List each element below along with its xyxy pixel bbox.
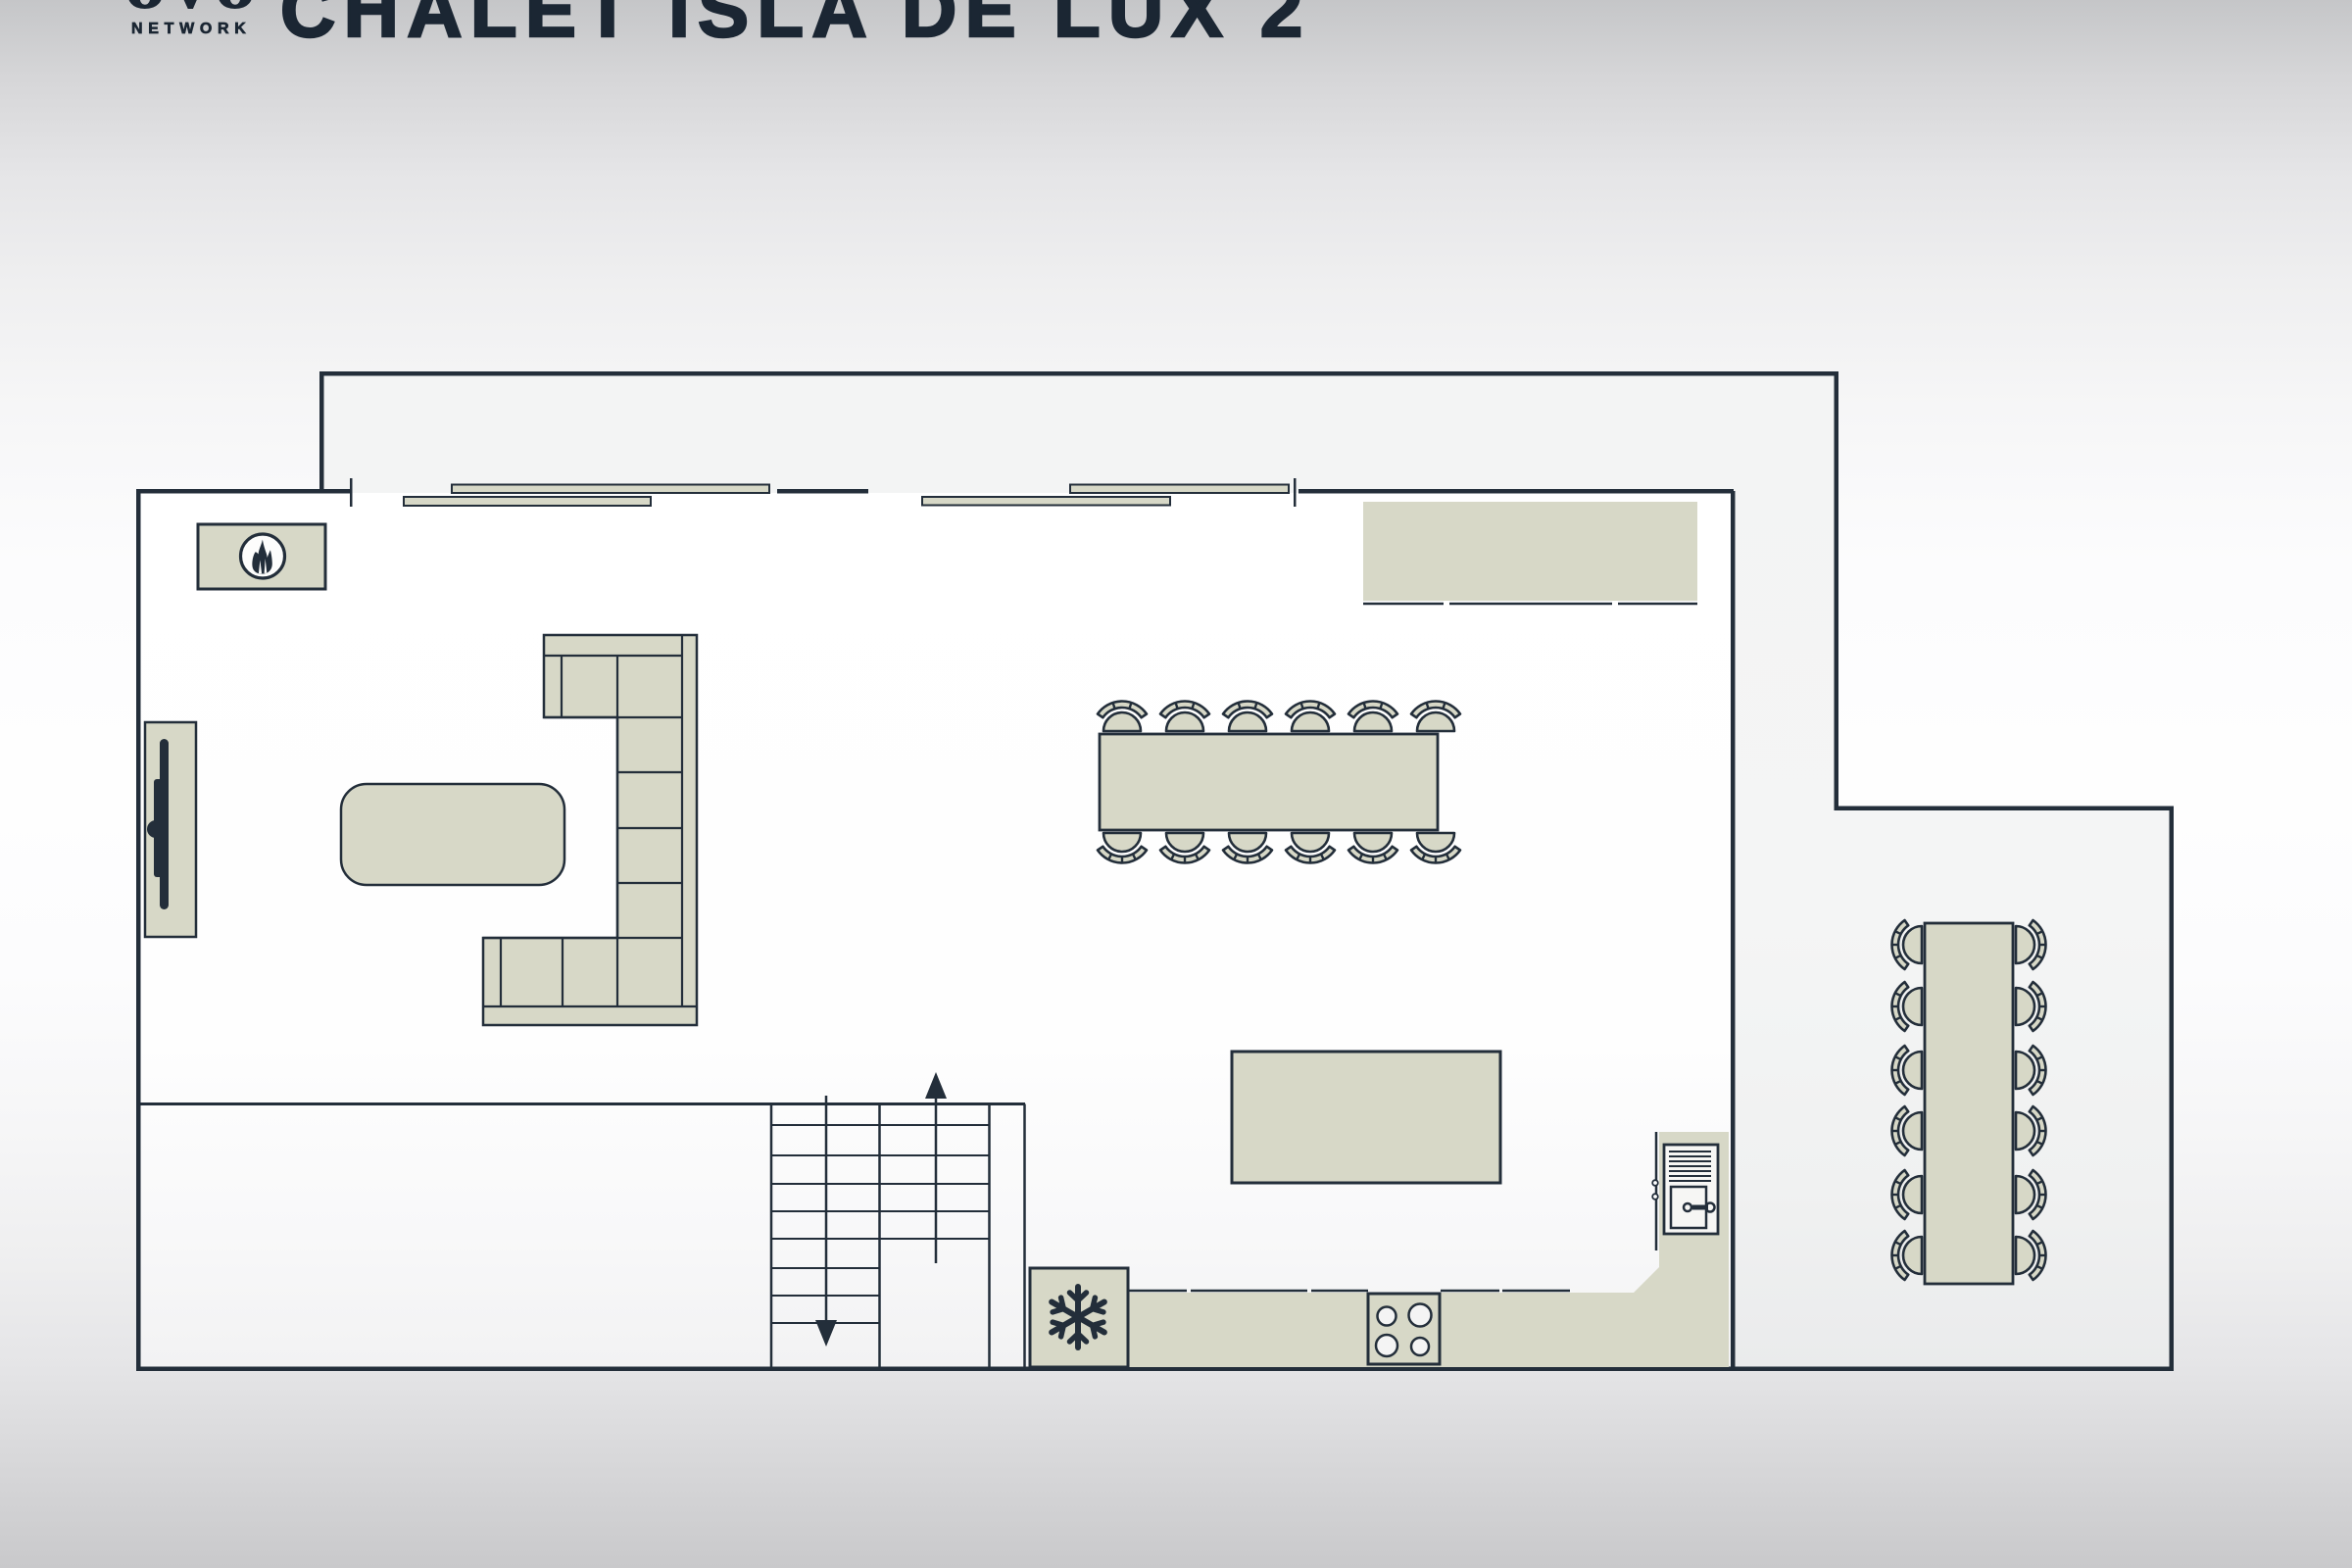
svg-text:CHALET ISLA DE LUX 2: CHALET ISLA DE LUX 2 — [280, 0, 1311, 53]
svg-text:NETWORK: NETWORK — [131, 21, 252, 37]
